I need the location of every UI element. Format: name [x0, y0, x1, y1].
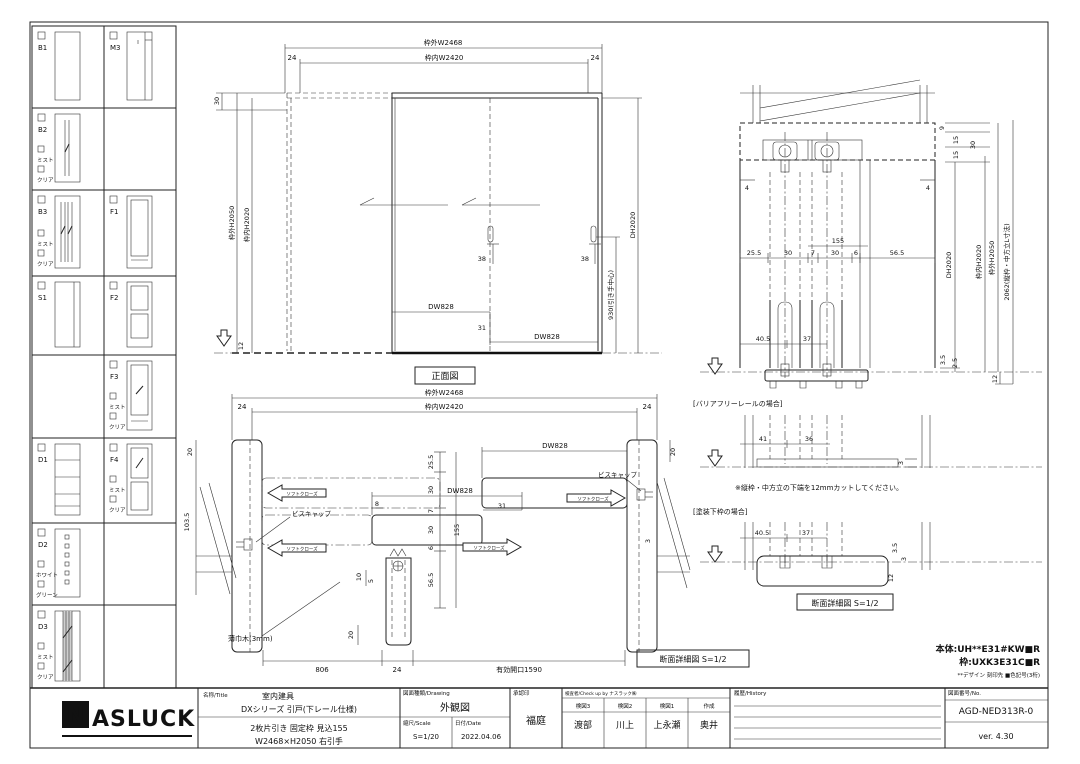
dim-37: 37: [802, 529, 810, 537]
dim-4: 4: [745, 184, 749, 192]
dim-inner-height: 枠内H2020: [242, 208, 251, 242]
option-label: ミスト: [37, 241, 54, 248]
dim-7: 7: [427, 509, 435, 513]
front-leaf-pocket: [262, 515, 372, 545]
view-label: 正面図: [431, 371, 458, 382]
option-label: ミスト: [37, 157, 54, 164]
dim-6: 6: [854, 249, 858, 257]
dim-155: 155: [453, 524, 461, 536]
check-name: 奥井: [700, 719, 718, 731]
dim-inner-height: 枠内H2020: [974, 245, 983, 279]
checkbox[interactable]: [38, 282, 45, 289]
dim-outer-height: 枠外H2050: [227, 206, 236, 240]
variant-code: F3: [110, 373, 118, 381]
cut-note: ※縦枠・中方立の下端を12mmカットしてください。: [735, 483, 903, 492]
checkbox-mist[interactable]: [38, 643, 44, 649]
floor-guide-plate: [765, 370, 868, 381]
checkbox[interactable]: [38, 529, 45, 536]
checkbox-clear[interactable]: [38, 663, 44, 669]
track-recess: [763, 140, 862, 160]
variant-code: F4: [110, 456, 119, 464]
scale-value: S=1/20: [413, 733, 439, 741]
variant-code: B1: [38, 44, 47, 52]
header-frame: [740, 123, 935, 160]
spec-line-2: W2468×H2050 右引手: [255, 736, 343, 746]
dim-3: 3: [900, 557, 908, 561]
section-label: 断面詳細図 S=1/2: [811, 598, 878, 608]
dim-dh2020: DH2020: [629, 212, 637, 238]
dim-3-5: 3.5: [891, 543, 899, 553]
soft-close-label: ソフトクローズ: [286, 491, 318, 498]
variant-cell-m3: M3: [110, 32, 152, 100]
detail-title: [塗装下枠の場合]: [693, 507, 748, 516]
dim-38: 38: [478, 255, 486, 263]
soft-close-arrow-left-2: ソフトクローズ: [268, 540, 326, 556]
variant-code: S1: [38, 294, 47, 302]
checkbox[interactable]: [38, 32, 45, 39]
dim-10: 10: [355, 573, 363, 581]
date-value: 2022.04.06: [461, 733, 502, 741]
door-thumbnail: [55, 196, 80, 268]
soft-close-label: ソフトクローズ: [286, 546, 318, 553]
option-label: クリア: [37, 177, 54, 184]
door-thumbnail: [127, 32, 152, 100]
dim-opening: 有効開口1590: [496, 665, 542, 674]
door-thumbnail: [55, 32, 80, 100]
checkbox[interactable]: [38, 114, 45, 121]
dim-7: 7: [811, 249, 815, 257]
dim-stile-length: 2062(縦枠・中方立L寸法): [1002, 223, 1011, 300]
dim-outer-height: 枠外H2050: [987, 241, 996, 275]
variant-cell-f3: F3 ミスト クリア: [109, 361, 152, 431]
variant-code: D1: [38, 456, 48, 464]
screw-cap-symbol: [244, 539, 252, 550]
dim-inner-width: 枠内W2420: [425, 402, 464, 411]
option-label: クリア: [109, 424, 126, 431]
frame-code: 枠:UXK3E31C■R: [958, 656, 1040, 668]
soft-close-arrow-right-1: ソフトクローズ: [567, 490, 625, 506]
baseboard-label: 薄巾木(3mm): [228, 634, 273, 643]
left-jamb: [232, 440, 262, 652]
floor-level-mark: [708, 546, 722, 562]
option-label: ミスト: [109, 487, 126, 494]
variant-sidebar: B1 M3 B2 ミスト クリア B3 ミスト クリア: [32, 26, 176, 688]
dim-30: 30: [427, 486, 435, 494]
logo-text: ASLUCK: [92, 707, 195, 732]
checkbox-mist[interactable]: [38, 146, 44, 152]
drawing-label: 図面種類/Drawing: [403, 689, 450, 697]
vertical-section: 4 4 155 25.5 30 7 30 6 56.5 40.5 37 9 15…: [700, 80, 1042, 388]
dim-3-5: 3.5: [939, 355, 947, 365]
dim-15: 15: [952, 136, 960, 144]
screw-cap-label: ビスキャップ: [292, 509, 332, 518]
screw-cap-label: ビスキャップ: [598, 470, 638, 479]
section-label: 断面詳細図 S=1/2: [659, 654, 726, 664]
variant-cell-d2: D2 ホワイト グリーン: [36, 529, 80, 599]
variant-cell-f1: F1: [110, 196, 152, 268]
barrier-free-detail: [バリアフリーレールの場合] 41 36 3 ※縦枠・中方立の下端を12mmカッ…: [693, 399, 1042, 492]
dim-41: 41: [759, 435, 767, 443]
date-label: 日付/Date: [455, 719, 482, 727]
check-name: 川上: [616, 720, 634, 731]
soft-close-arrow-right-2: ソフトクローズ: [463, 539, 521, 555]
dim-30: 30: [213, 97, 221, 105]
check-col: 検図2: [618, 702, 633, 710]
check-col: 検図3: [576, 702, 591, 710]
door-thumbnail: [55, 444, 80, 515]
dim-30: 30: [831, 249, 839, 257]
front-elevation: 枠外W2468 枠内W2420 24 24 30 枠外H2050 枠内H2020…: [213, 38, 662, 384]
nasluck-logo: N ASLUCK: [62, 701, 195, 736]
checkbox[interactable]: [110, 32, 117, 39]
dim-30: 30: [784, 249, 792, 257]
dim-dw828: DW828: [447, 487, 473, 495]
dim-12: 12: [991, 375, 999, 383]
door-thumbnail: [55, 282, 80, 347]
variant-code: F2: [110, 294, 118, 302]
dim-outer-width: 枠外W2468: [424, 38, 463, 47]
body-code: 本体:UH**E31#KW■R: [936, 643, 1040, 655]
drawing-no-label: 図面番号/No.: [948, 690, 981, 697]
dim-3: 3: [897, 461, 905, 465]
option-label: ミスト: [109, 404, 126, 411]
series-line: DXシリーズ 引戸(下レール仕様): [241, 704, 357, 714]
variant-code: M3: [110, 44, 121, 52]
checkbox-mist[interactable]: [110, 393, 116, 399]
check-col: 作成: [703, 702, 715, 710]
dim-dw828: DW828: [428, 303, 454, 311]
product-codes: 本体:UH**E31#KW■R 枠:UXK3E31C■R **デザイン 刻印先 …: [936, 643, 1040, 679]
check-label: 検査者/Check up by ナスラック㈱: [565, 690, 637, 697]
variant-cell-f4: F4 ミスト クリア: [109, 444, 152, 515]
option-label: クリア: [37, 261, 54, 268]
dim-24-left: 24: [288, 54, 297, 62]
dim-3: 3: [644, 539, 652, 543]
checkbox-mist[interactable]: [38, 230, 44, 236]
dim-24-right: 24: [643, 403, 652, 411]
door-handle: [488, 226, 493, 242]
cad-canvas: B1 M3 B2 ミスト クリア B3 ミスト クリア: [0, 0, 1080, 764]
dim-dh2020: DH2020: [945, 252, 953, 278]
variant-cell-d3: D3 ミスト クリア: [37, 611, 80, 681]
dim-56-5: 56.5: [427, 573, 435, 587]
detail-title: [バリアフリーレールの場合]: [693, 399, 783, 408]
variant-code: F1: [110, 208, 118, 216]
dim-9: 9: [938, 126, 946, 130]
dim-15: 15: [952, 151, 960, 159]
drawing-no-value: AGD-NED313R-0: [959, 707, 1034, 717]
checkbox-mist[interactable]: [110, 476, 116, 482]
option-label: ミスト: [37, 654, 54, 661]
logo-n: N: [67, 703, 84, 727]
variant-cell-f2: F2: [110, 282, 152, 347]
drawing-value: 外観図: [440, 701, 470, 714]
dim-12: 12: [237, 342, 245, 350]
dim-12: 12: [887, 574, 895, 582]
dim-155: 155: [832, 237, 844, 245]
stamp-value: 福庭: [526, 714, 546, 727]
option-label: クリア: [37, 674, 54, 681]
dim-31: 31: [498, 502, 506, 510]
checkbox[interactable]: [38, 444, 45, 451]
floor-level-mark: [708, 358, 722, 374]
dim-25-5: 25.5: [427, 455, 435, 469]
door-handle: [591, 226, 596, 242]
dim-30: 30: [427, 526, 435, 534]
variant-cell-d1: D1: [38, 444, 80, 515]
dim-30: 30: [969, 141, 977, 149]
checkbox-clear[interactable]: [38, 250, 44, 256]
dim-handle-center: 930(引き手中心): [606, 270, 615, 320]
dim-31: 31: [478, 324, 486, 332]
dim-40-5: 40.5: [756, 335, 770, 343]
title-block: N ASLUCK 名称/Title 室内建具 DXシリーズ 引戸(下レール仕様)…: [30, 688, 1048, 748]
checkbox-clear[interactable]: [110, 413, 116, 419]
dim-inner-width: 枠内W2420: [425, 53, 464, 62]
checkbox[interactable]: [38, 611, 45, 618]
floor-level-mark: [217, 330, 231, 346]
dim-40-5: 40.5: [755, 529, 769, 537]
dim-24-right: 24: [591, 54, 600, 62]
floor-level-mark: [708, 450, 722, 466]
spec-line-1: 2枚片引き 固定枠 見込155: [250, 723, 347, 733]
dim-36: 36: [805, 435, 813, 443]
checkbox[interactable]: [38, 196, 45, 203]
stamp-label: 承認印: [513, 689, 530, 697]
soft-close-label: ソフトクローズ: [473, 545, 505, 552]
dim-dw828: DW828: [542, 442, 568, 450]
check-name: 上永瀬: [653, 719, 680, 731]
flat-rail: [757, 459, 898, 467]
dim-5: 5: [367, 579, 375, 583]
dim-806: 806: [315, 666, 329, 674]
dim-25-5: 25.5: [747, 249, 761, 257]
history-label: 履歴/History: [734, 690, 767, 697]
dim-37: 37: [803, 335, 811, 343]
variant-code: D2: [38, 541, 48, 549]
guide-spring: [390, 549, 406, 556]
painted-sill: [757, 556, 888, 586]
variant-code: B2: [38, 126, 47, 134]
dim-outer-width: 枠外W2468: [425, 388, 464, 397]
soft-close-label: ソフトクローズ: [577, 496, 609, 503]
dim-dw828: DW828: [534, 333, 560, 341]
checkbox[interactable]: [110, 282, 117, 289]
variant-cell-b3: B3 ミスト クリア: [37, 196, 80, 268]
sheet-border: [30, 22, 1048, 748]
variant-code: B3: [38, 208, 47, 216]
checkbox[interactable]: [110, 196, 117, 203]
dim-38: 38: [581, 255, 589, 263]
dim-20: 20: [186, 448, 194, 456]
dim-2-5: 2.5: [951, 358, 959, 368]
drawing-sheet: B1 M3 B2 ミスト クリア B3 ミスト クリア: [0, 0, 1080, 764]
check-col: 検図1: [660, 702, 675, 710]
dim-24: 24: [393, 666, 402, 674]
version: ver. 4.30: [978, 732, 1013, 741]
name-label: 名称/Title: [203, 691, 228, 699]
variant-cell-b2: B2 ミスト クリア: [37, 114, 80, 184]
dim-20: 20: [347, 631, 355, 639]
scale-label: 縮尺/Scale: [403, 719, 431, 727]
dim-4: 4: [926, 184, 930, 192]
variant-code: D3: [38, 623, 48, 631]
checkbox-clear[interactable]: [38, 166, 44, 172]
check-name: 渡部: [574, 719, 592, 731]
variant-cell-s1: S1: [38, 282, 80, 347]
dim-103-5: 103.5: [183, 513, 191, 532]
dim-24-left: 24: [238, 403, 247, 411]
checkbox-clear[interactable]: [110, 496, 116, 502]
checkbox-white[interactable]: [38, 561, 44, 567]
variant-cell-b1: B1: [38, 32, 80, 100]
plan-section: 枠外W2468 枠内W2420 24 24 DW828 DW828 8 31 2…: [183, 388, 749, 674]
dim-8: 8: [375, 500, 379, 508]
dim-56-5: 56.5: [890, 249, 904, 257]
painted-sill-detail: [塗装下枠の場合] 40.5 37 3.5 3 12 断面詳細図 S=1/2: [693, 507, 1042, 610]
checkbox[interactable]: [110, 361, 117, 368]
name-value: 室内建具: [262, 691, 294, 701]
option-label: クリア: [109, 507, 126, 514]
soft-close-arrow-left-1: ソフトクローズ: [268, 485, 326, 501]
code-note: **デザイン 刻印先 ■色記号(3桁): [958, 671, 1041, 679]
checkbox-green[interactable]: [38, 581, 44, 587]
dim-20: 20: [669, 448, 677, 456]
checkbox[interactable]: [110, 444, 117, 451]
dim-6: 6: [427, 546, 435, 550]
